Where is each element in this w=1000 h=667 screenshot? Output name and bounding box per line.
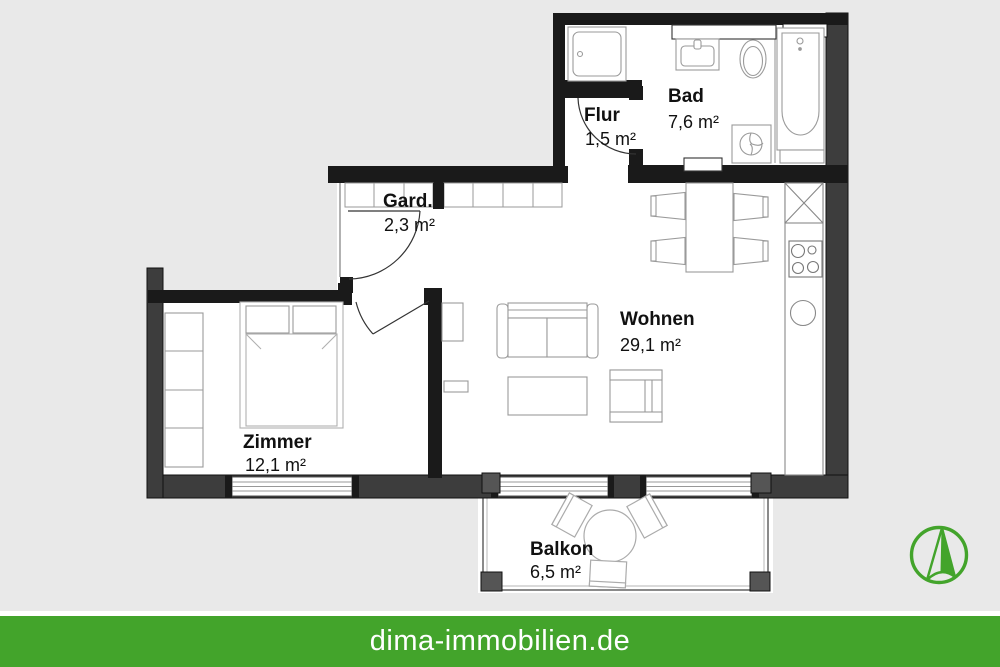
room-area-balkon: 6,5 m² (530, 562, 581, 582)
window (498, 477, 608, 496)
balcony-chair (589, 560, 626, 588)
bathtub-icon (777, 28, 824, 163)
toilet-icon (740, 40, 766, 78)
compass-north-arrow-icon (903, 519, 975, 591)
room-area-bad: 7,6 m² (668, 112, 719, 132)
vanity-counter (672, 25, 776, 39)
room-area-flur: 1,5 m² (585, 129, 636, 149)
cooktop-icon (789, 241, 822, 277)
website-link[interactable]: dima-immobilien.de (370, 625, 630, 658)
room-label-wohnen: Wohnen (620, 309, 695, 330)
room-area-gard: 2,3 m² (384, 215, 435, 235)
footer-bar: dima-immobilien.de (0, 616, 1000, 667)
wardrobe-icon (165, 313, 203, 467)
coffee-table (508, 377, 587, 415)
dining-chair (651, 193, 685, 220)
floor-plan-drawing: Flur 1,5 m² Bad 7,6 m² Gard. 2,3 m² Wohn… (0, 0, 1000, 611)
room-area-zimmer: 12,1 m² (245, 455, 306, 475)
room-label-zimmer: Zimmer (243, 432, 312, 453)
armchair-icon (610, 370, 662, 422)
dining-chair (734, 238, 768, 265)
kitchen-strip (785, 183, 823, 475)
room-label-bad: Bad (668, 86, 704, 107)
shelf (444, 381, 468, 392)
window (232, 477, 352, 496)
sofa-icon (497, 303, 598, 358)
washing-machine-icon (732, 125, 771, 163)
radiator (684, 158, 722, 171)
bed-icon (240, 302, 343, 428)
floor-plan: Flur 1,5 m² Bad 7,6 m² Gard. 2,3 m² Wohn… (0, 0, 1000, 611)
dining-chair (651, 238, 685, 265)
fridge-icon (785, 183, 823, 223)
sink-icon (676, 39, 719, 70)
gard-closets (345, 183, 562, 209)
window (646, 477, 752, 496)
dining-table (686, 183, 733, 272)
room-area-wohnen: 29,1 m² (620, 335, 681, 355)
room-label-gard: Gard. (383, 191, 433, 212)
room-label-flur: Flur (584, 105, 620, 126)
sideboard (442, 303, 463, 341)
shower-icon (568, 27, 626, 81)
dining-chair (734, 194, 768, 221)
screenshot: Flur 1,5 m² Bad 7,6 m² Gard. 2,3 m² Wohn… (0, 0, 1000, 667)
room-label-balkon: Balkon (530, 539, 593, 560)
brand-logo (903, 519, 975, 591)
